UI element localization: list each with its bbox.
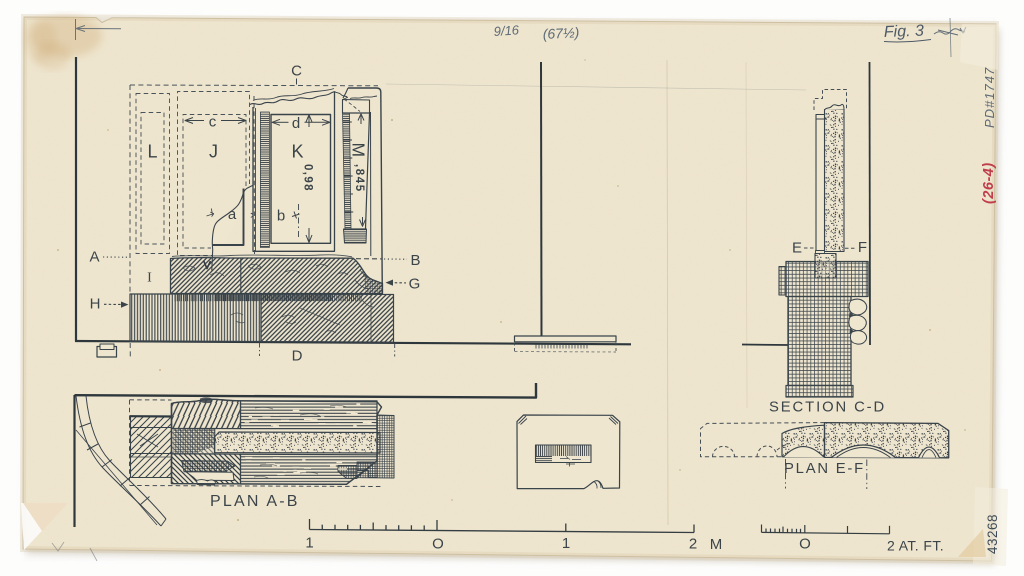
svg-text:H: H [90,296,101,313]
svg-text:SECTION C-D: SECTION C-D [769,400,886,416]
svg-text:PLAN A-B: PLAN A-B [210,493,300,510]
svg-text:D: D [292,348,303,365]
svg-text:2: 2 [689,536,697,553]
svg-text:I: I [147,271,152,286]
svg-text:1: 1 [305,535,313,552]
svg-text:a: a [228,206,237,223]
svg-text:43268: 43268 [985,514,1000,554]
svg-text:B: B [410,252,420,269]
svg-text:(67½): (67½) [542,24,579,42]
svg-text:A: A [89,249,99,266]
svg-text:J: J [209,142,218,162]
svg-text:1: 1 [562,535,570,552]
svg-text:(26-4): (26-4) [981,162,997,204]
svg-text:PLAN E-F: PLAN E-F [784,461,865,477]
svg-text:M: M [710,536,723,553]
svg-text:9/16: 9/16 [493,22,520,39]
svg-text:G: G [409,276,421,293]
svg-text:O: O [432,535,444,552]
svg-text:O: O [799,535,811,552]
svg-text:d: d [292,115,300,132]
svg-text:PD#1747: PD#1747 [982,67,997,128]
svg-text:C: C [291,63,302,80]
svg-text:2 AT. FT.: 2 AT. FT. [887,538,944,554]
svg-text:b: b [277,208,285,225]
svg-text:E: E [792,240,802,257]
svg-text:0,98: 0,98 [302,164,314,192]
svg-text:F: F [858,239,867,256]
svg-text:M: M [349,143,369,158]
svg-text:Fig. 3: Fig. 3 [884,23,925,41]
svg-text:c: c [209,114,217,131]
svg-text:L: L [147,142,157,162]
svg-text:,845: ,845 [353,164,365,193]
svg-text:K: K [291,142,303,162]
